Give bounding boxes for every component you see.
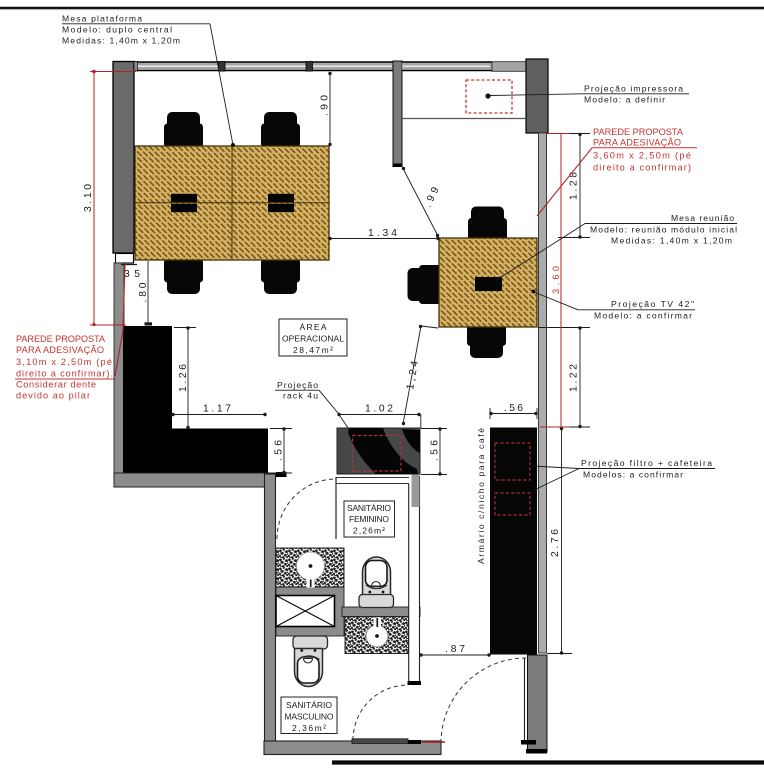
- svg-text:MASCULINO: MASCULINO: [285, 712, 334, 722]
- svg-text:SANITÁRIO: SANITÁRIO: [347, 503, 391, 513]
- svg-text:Projeção TV 42": Projeção TV 42": [611, 299, 694, 309]
- svg-text:1.17: 1.17: [203, 404, 231, 415]
- svg-text:Considerar dente: Considerar dente: [16, 380, 96, 390]
- svg-text:Mesa reunião: Mesa reunião: [671, 213, 734, 223]
- svg-text:Projeção: Projeção: [277, 380, 318, 390]
- svg-text:PARA ADESIVAÇÃO: PARA ADESIVAÇÃO: [593, 138, 681, 148]
- svg-text:1.28: 1.28: [569, 172, 580, 200]
- svg-text:FEMININO: FEMININO: [349, 514, 389, 524]
- svg-text:1.34: 1.34: [368, 228, 397, 239]
- svg-text:Modelo: a confirmar: Modelo: a confirmar: [594, 311, 692, 321]
- svg-text:3.60: 3.60: [551, 266, 561, 294]
- svg-text:SANITÁRIO: SANITÁRIO: [286, 700, 332, 710]
- svg-text:2.76: 2.76: [550, 529, 561, 557]
- svg-text:3,10m x 2,50m (pé: 3,10m x 2,50m (pé: [16, 357, 112, 367]
- svg-text:devido ao pilar: devido ao pilar: [16, 391, 90, 401]
- svg-text:28,47m²: 28,47m²: [293, 345, 333, 355]
- svg-text:3,60m x 2,50m (pé: 3,60m x 2,50m (pé: [593, 151, 691, 161]
- svg-text:PAREDE PROPOSTA: PAREDE PROPOSTA: [593, 127, 684, 137]
- svg-text:Projeção impressora: Projeção impressora: [584, 84, 683, 94]
- svg-text:PARA ADESIVAÇÃO: PARA ADESIVAÇÃO: [16, 345, 104, 355]
- svg-text:3.10: 3.10: [83, 184, 94, 212]
- svg-text:ÁREA: ÁREA: [300, 322, 327, 332]
- svg-text:Modelo: reunião módulo inicial: Modelo: reunião módulo inicial: [590, 225, 737, 235]
- svg-text:Armário c/nicho para café: Armário c/nicho para café: [476, 428, 486, 564]
- svg-text:Modelos: a confirmar: Modelos: a confirmar: [583, 470, 683, 480]
- svg-text:Modelo: duplo central: Modelo: duplo central: [62, 25, 172, 35]
- svg-text:PAREDE PROPOSTA: PAREDE PROPOSTA: [16, 334, 106, 344]
- svg-text:1.26: 1.26: [178, 364, 189, 392]
- svg-text:Modelo: a definir: Modelo: a definir: [584, 95, 665, 105]
- svg-text:direito a confirmar).: direito a confirmar).: [16, 369, 113, 379]
- svg-text:Medidas: 1,40m x 1,20m: Medidas: 1,40m x 1,20m: [62, 36, 180, 46]
- svg-text:OPERACIONAL: OPERACIONAL: [282, 334, 344, 344]
- svg-text:rack 4u: rack 4u: [283, 391, 318, 401]
- svg-text:Mesa plataforma: Mesa plataforma: [62, 14, 142, 24]
- svg-text:direito a confirmar): direito a confirmar): [593, 163, 691, 173]
- svg-text:1.22: 1.22: [569, 364, 580, 392]
- svg-text:1.02: 1.02: [365, 404, 393, 415]
- svg-text:Medidas: 1,40m x 1,20m: Medidas: 1,40m x 1,20m: [611, 236, 732, 246]
